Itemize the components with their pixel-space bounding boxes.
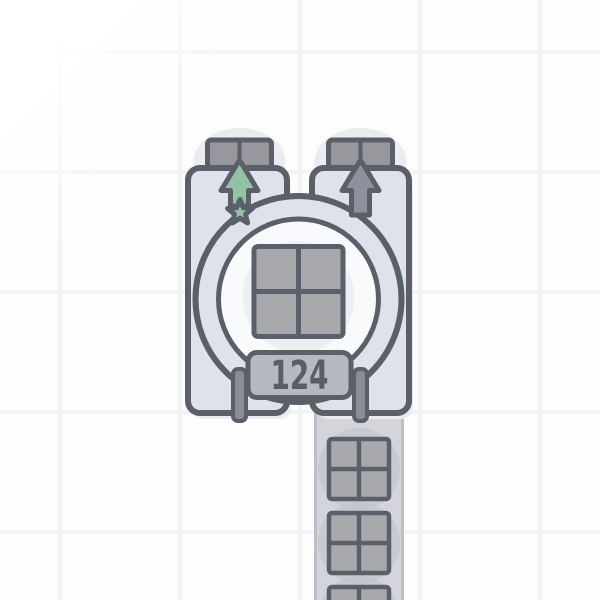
center-item [254,247,343,337]
game-viewport: 124 [0,0,600,600]
belt-item [318,428,400,510]
counter-badge: 124 [248,353,351,400]
counter-value: 124 [271,353,329,399]
game-scene: 124 [0,0,600,600]
belt-item [318,502,400,584]
machine-leg-left [233,369,246,421]
machine[interactable]: 124 [188,128,413,421]
conveyor-belt[interactable] [314,404,404,600]
machine-leg-right [354,369,367,421]
